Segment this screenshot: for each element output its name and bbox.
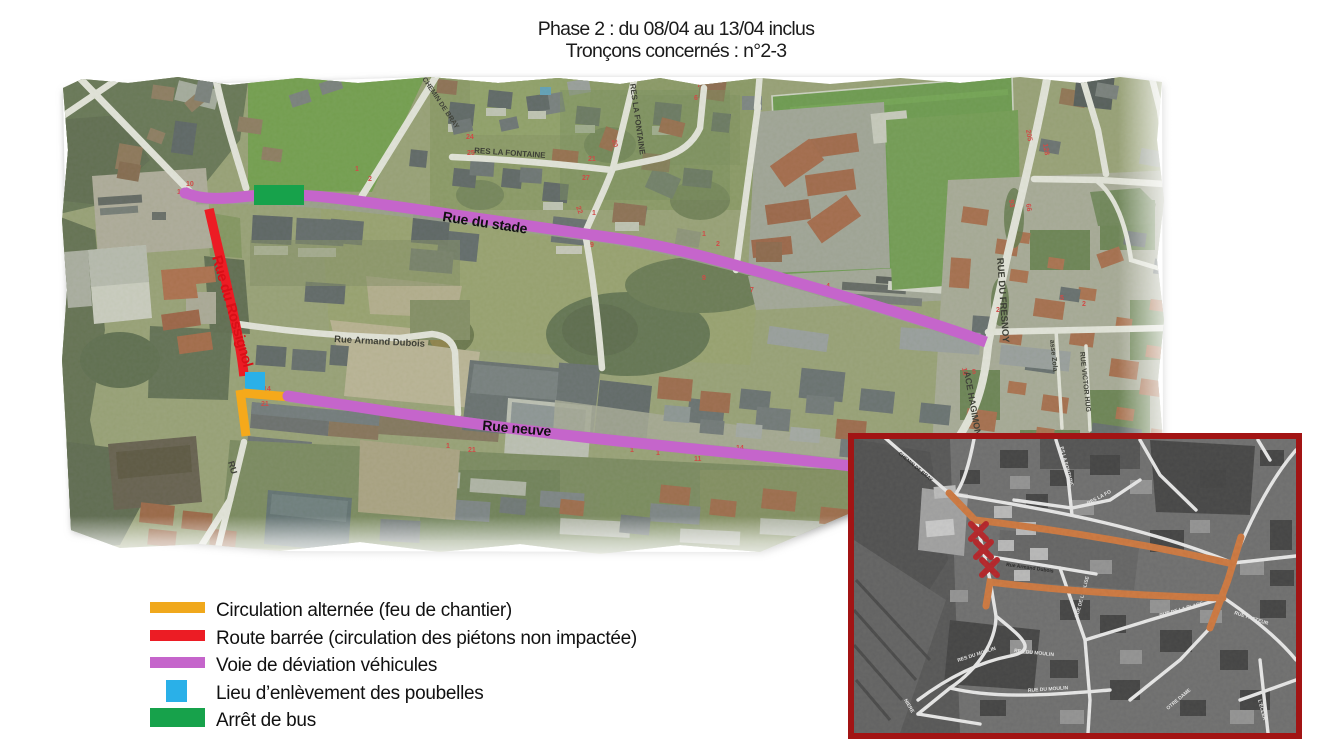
svg-text:Lieu d’enlèvement des poubelle: Lieu d’enlèvement des poubelles bbox=[216, 683, 483, 704]
svg-text:Route barrée (circulation des: Route barrée (circulation des piétons no… bbox=[216, 628, 637, 649]
svg-text:Tronçons concernés : n°2-3: Tronçons concernés : n°2-3 bbox=[566, 40, 787, 62]
svg-text:Circulation alternée (feu de c: Circulation alternée (feu de chantier) bbox=[216, 600, 512, 621]
svg-text:Arrêt de bus: Arrêt de bus bbox=[216, 710, 316, 731]
svg-text:Voie de déviation véhicules: Voie de déviation véhicules bbox=[216, 655, 437, 676]
svg-text:Phase 2 : du 08/04 au 13/04 in: Phase 2 : du 08/04 au 13/04 inclus bbox=[538, 18, 815, 40]
